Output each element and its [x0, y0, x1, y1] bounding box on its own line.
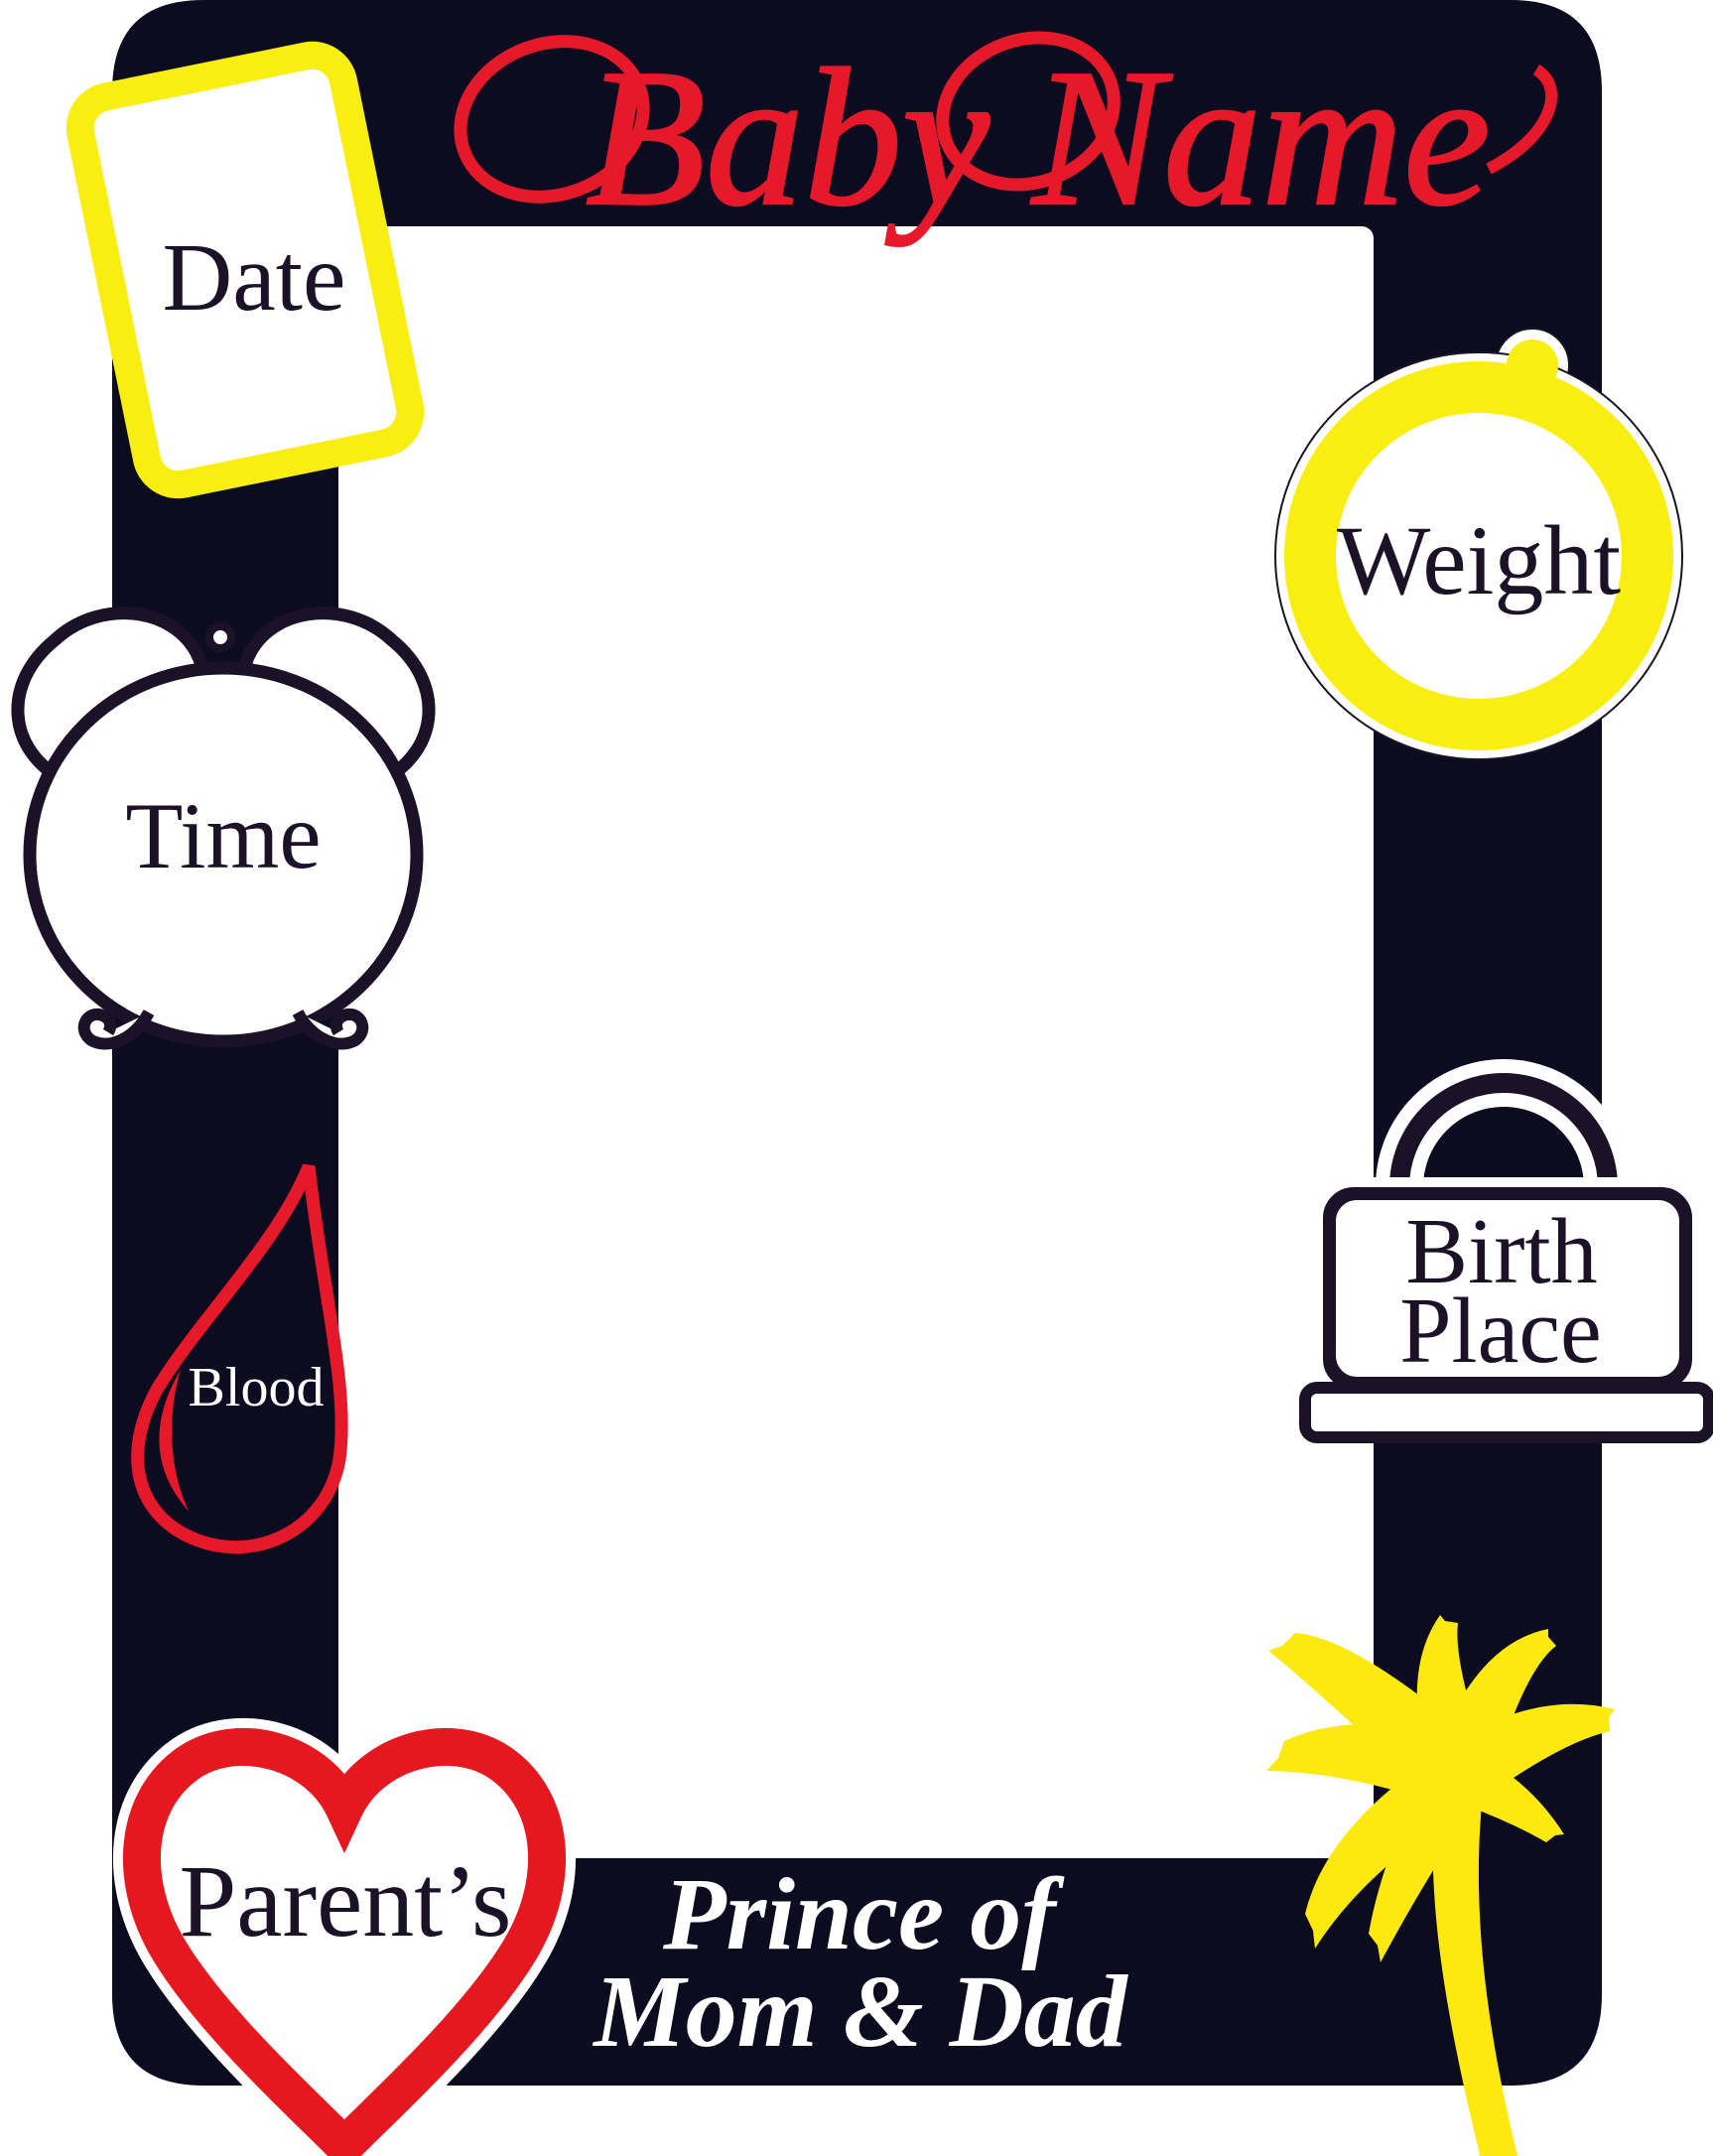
- svg-text:Place: Place: [1399, 1280, 1602, 1383]
- svg-text:Mom & Dad: Mom & Dad: [592, 1954, 1128, 2069]
- svg-text:Date: Date: [163, 224, 346, 332]
- svg-text:Time: Time: [125, 783, 321, 888]
- svg-text:Weight: Weight: [1337, 505, 1622, 615]
- svg-text:Blood: Blood: [189, 1357, 325, 1418]
- svg-text:Name: Name: [1030, 29, 1491, 246]
- svg-text:Parent’s: Parent’s: [179, 1844, 511, 1958]
- svg-text:Baby: Baby: [586, 29, 989, 246]
